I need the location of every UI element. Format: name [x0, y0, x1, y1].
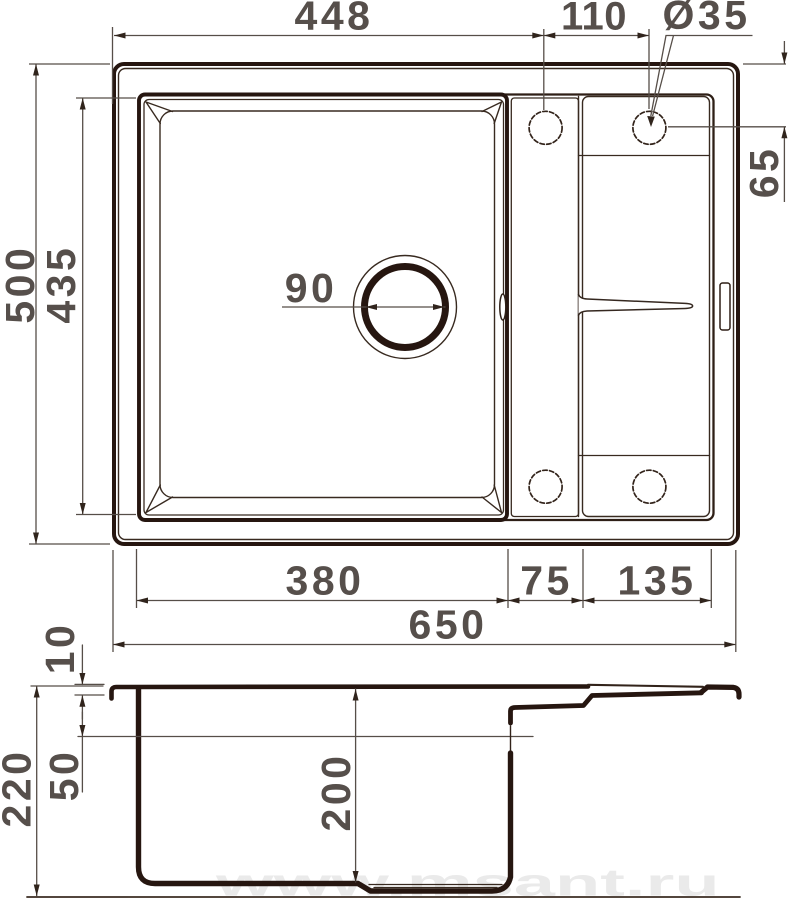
- svg-text:380: 380: [286, 558, 365, 604]
- svg-text:65: 65: [741, 146, 787, 199]
- svg-text:650: 650: [409, 602, 488, 648]
- svg-text:435: 435: [38, 245, 84, 324]
- svg-text:220: 220: [0, 749, 40, 828]
- svg-text:500: 500: [0, 245, 43, 324]
- svg-text:75: 75: [520, 558, 573, 604]
- svg-text:110: 110: [561, 0, 627, 39]
- svg-text:200: 200: [313, 753, 359, 832]
- svg-text:10: 10: [37, 622, 83, 675]
- svg-text:90: 90: [285, 265, 338, 311]
- svg-text:448: 448: [295, 0, 374, 39]
- svg-text:Ø35: Ø35: [663, 0, 751, 38]
- svg-text:135: 135: [618, 558, 697, 604]
- svg-text:50: 50: [41, 749, 87, 802]
